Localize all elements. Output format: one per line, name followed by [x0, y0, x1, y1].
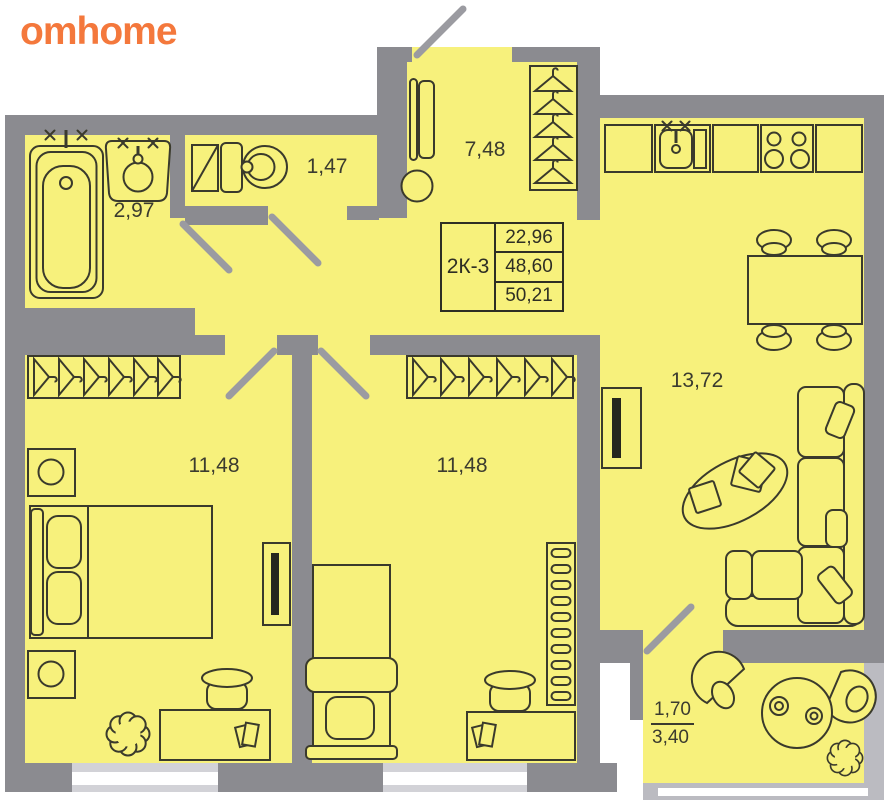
wall [5, 115, 377, 135]
window-glass [383, 772, 527, 785]
room-label-bedroom-left: 11,48 [189, 454, 240, 478]
hallway-mirror [410, 79, 434, 160]
wall [195, 335, 225, 355]
single-bed [306, 565, 397, 759]
ladder-shelf [547, 543, 575, 705]
floor-plan [0, 0, 889, 800]
wall [370, 335, 600, 355]
wall [864, 95, 884, 663]
bedroom-middle-wardrobe [407, 356, 575, 398]
wall [600, 630, 643, 663]
flower-rug [827, 740, 862, 775]
wall [277, 335, 318, 355]
wall [5, 308, 195, 355]
balcony-rail-glass [658, 788, 868, 796]
hallway-stool [402, 171, 433, 202]
wall [5, 115, 25, 763]
kitchen-counter [605, 122, 862, 173]
wall [577, 47, 600, 220]
radiator [263, 543, 290, 625]
wall [377, 47, 412, 62]
balcony-area-label: 1,70 3,40 [651, 699, 694, 750]
room-label-toilet: 1,47 [307, 155, 348, 179]
unit-area-total-balcony: 50,21 [496, 283, 562, 310]
floorplan-page: omhome [0, 0, 889, 800]
double-bed [30, 506, 212, 638]
wall [292, 355, 312, 763]
unit-area-living: 22,96 [496, 224, 562, 253]
balcony-full-area: 3,40 [651, 725, 694, 750]
unit-code: 2К-3 [442, 224, 496, 310]
wall [185, 206, 268, 225]
room-label-kitchen-living: 13,72 [671, 369, 724, 393]
wall [577, 355, 600, 763]
hallway-wardrobe [530, 66, 577, 190]
wall [600, 95, 884, 118]
wall [723, 630, 864, 663]
room-label-bathroom: 2,97 [114, 199, 155, 223]
bathroom-sink [106, 139, 170, 202]
unit-info-table: 2К-3 22,96 48,60 50,21 [440, 222, 564, 312]
window-glass [72, 772, 218, 785]
radiator [602, 388, 641, 468]
nightstand [28, 449, 75, 496]
toilet [192, 143, 287, 192]
nightstand [28, 651, 75, 698]
wall [170, 135, 185, 218]
wall [630, 663, 643, 720]
unit-area-total: 48,60 [496, 253, 562, 282]
room-label-bedroom-middle: 11,48 [437, 454, 488, 478]
bathtub [30, 130, 103, 298]
dining-table [748, 256, 862, 324]
wall [347, 206, 379, 220]
balcony-reduced-area: 1,70 [651, 699, 694, 725]
room-label-hallway: 7,48 [465, 138, 506, 162]
flower-rug [107, 713, 150, 756]
bedroom-left-wardrobe [28, 356, 181, 398]
